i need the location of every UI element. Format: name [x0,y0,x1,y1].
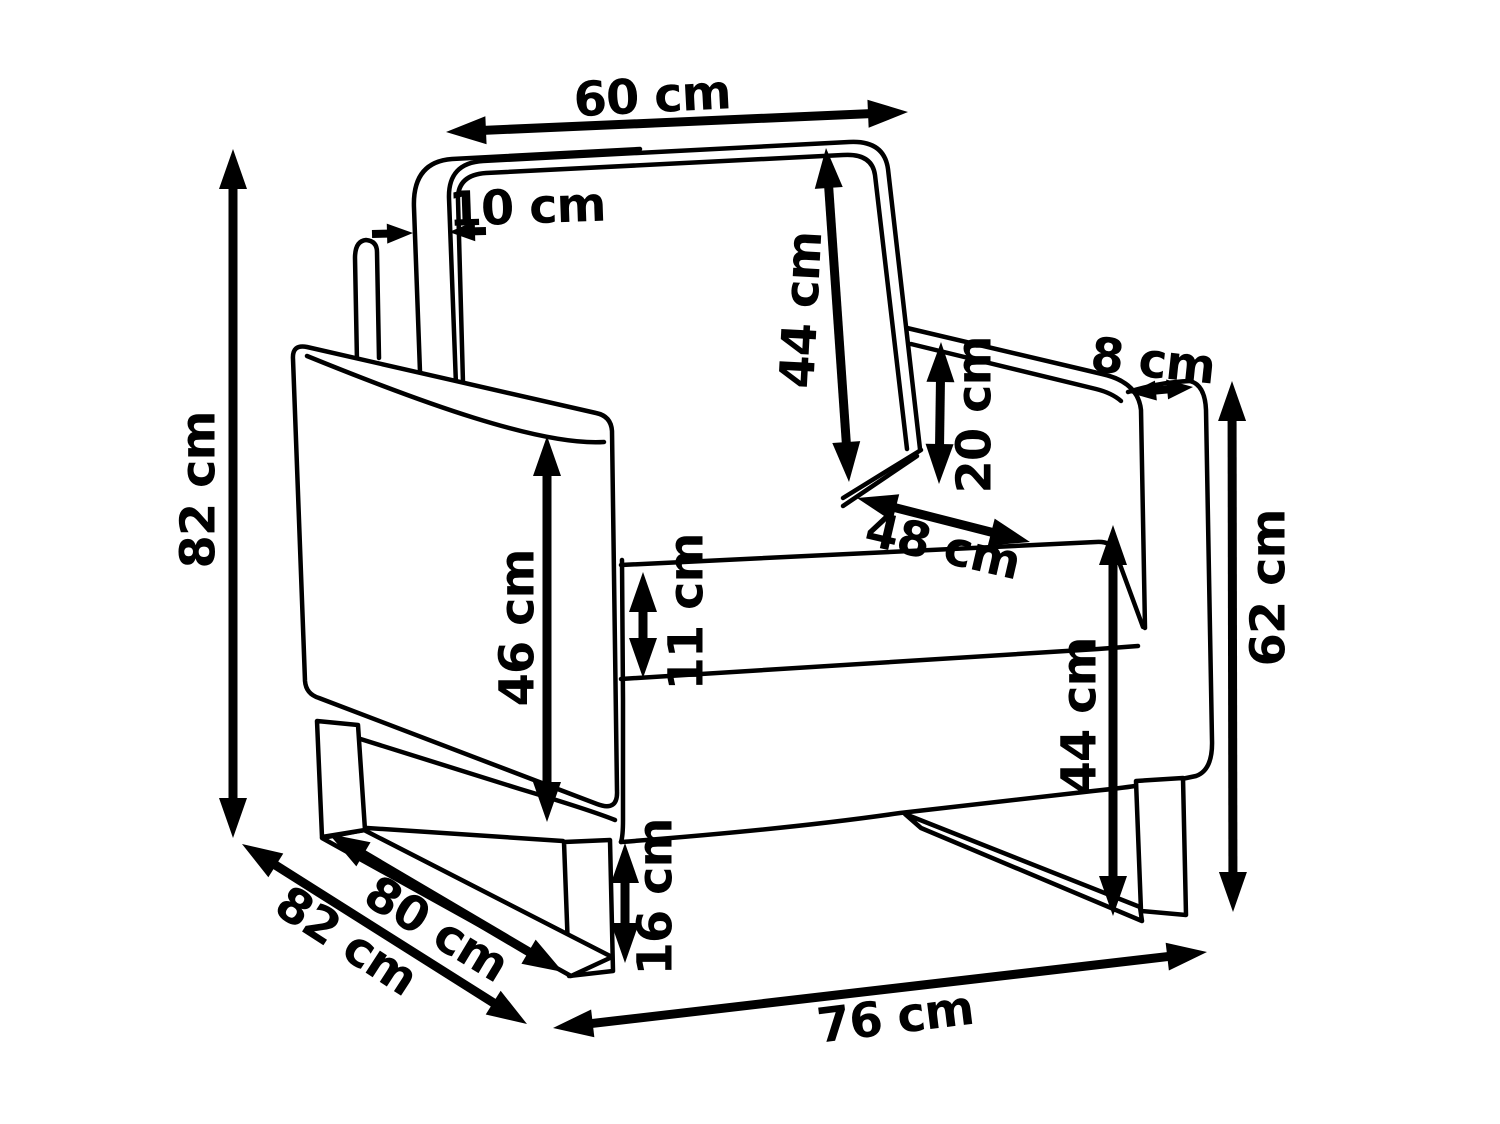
arrowhead-icon [219,149,247,189]
dimension-label: 62 cm [1240,510,1296,667]
dimension-armrest-above-seat: 20 cm [926,337,1003,494]
dimension-label: 16 cm [627,819,683,976]
dimension-label: 46 cm [489,550,545,707]
dimension-label: 11 cm [658,534,714,691]
arrowhead-icon [486,991,527,1024]
armchair-dimension-diagram: 60 cm10 cm44 cm20 cm8 cm48 cm82 cm46 cm1… [0,0,1500,1124]
dimension-label: 44 cm [769,230,833,390]
arrowhead-icon [1166,943,1207,971]
dimension-seat-height: 44 cm [1051,525,1127,916]
dimension-arrow-line [939,374,940,452]
arrowhead-icon [1219,872,1247,912]
dimension-label: 48 cm [860,501,1026,591]
dimension-seat-cushion-thickness: 11 cm [629,534,714,691]
arrowhead-icon [629,638,657,678]
back-panel-rear-post [355,240,379,362]
dimension-arrow-line [828,180,847,450]
dimension-seat-depth: 48 cm [857,494,1030,591]
arrowhead-icon [1218,381,1246,421]
arrowhead-icon [242,844,283,877]
arrowhead-icon [1099,525,1127,565]
dimension-label: 10 cm [448,177,607,238]
dimension-label: 60 cm [572,64,732,128]
base-bottom-edge-left [367,828,563,841]
dimension-label: 44 cm [1051,638,1107,795]
arrowhead-icon [629,572,657,612]
cushion-front-corner-edge [621,560,623,842]
right-armrest-outer-edge [1140,381,1212,784]
dimension-label: 8 cm [1088,327,1218,396]
right-leg-rear-bar [1136,778,1186,915]
right-leg-bottom-bar [905,814,1142,921]
dimension-backrest-top-width: 60 cm [446,64,908,144]
arrowhead-icon [832,441,860,482]
dimension-backrest-height: 44 cm [769,148,860,482]
arrowhead-icon [553,1009,594,1037]
armchair-drawing [293,142,1212,976]
left-leg-front-bar [317,721,365,837]
dimension-arrow-line [1232,413,1233,880]
arrowhead-icon [867,100,908,128]
dimension-total-height: 82 cm [170,149,247,838]
dimension-back-panel-thickness: 10 cm [372,177,606,244]
dimension-armrest-floor-height: 62 cm [1218,381,1296,912]
diagram-canvas: 60 cm10 cm44 cm20 cm8 cm48 cm82 cm46 cm1… [0,0,1500,1124]
dimension-label: 20 cm [946,337,1002,494]
arrowhead-icon [446,116,487,144]
arrowhead-icon [387,224,413,244]
arrowhead-icon [219,798,247,838]
dimension-armrest-width: 8 cm [1088,327,1218,401]
dimension-label: 82 cm [170,412,226,569]
